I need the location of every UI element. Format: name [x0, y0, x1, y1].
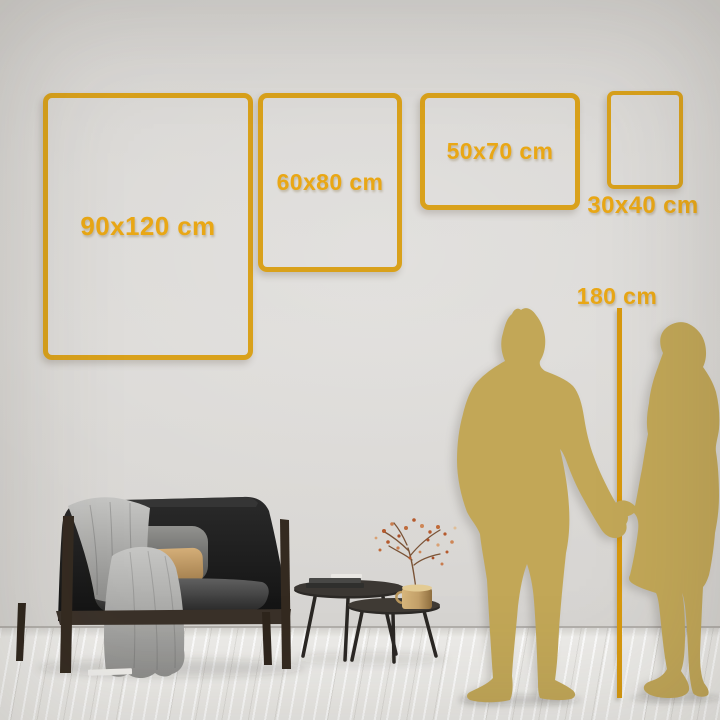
vase-rim [402, 585, 432, 592]
dried-flowers [375, 518, 457, 565]
size-frame-50x70: 50x70 cm [420, 93, 580, 210]
size-label-90x120: 90x120 cm [80, 211, 215, 242]
branch [383, 523, 440, 589]
sofa-icon [16, 497, 291, 678]
table-floor-shadow [292, 653, 448, 665]
size-frame-60x80: 60x80 cm [258, 93, 402, 272]
sofa-rail [56, 609, 291, 625]
size-comparison-infographic: 90x120 cm 60x80 cm 50x70 cm 30x40 cm 180… [0, 0, 720, 720]
man-silhouette [457, 308, 627, 702]
woman-silhouette [614, 322, 720, 698]
sofa-rear-left-leg [16, 603, 26, 661]
sofa-front-right-post [280, 519, 291, 669]
living-room-scene [0, 470, 470, 720]
size-frame-90x120: 90x120 cm [43, 93, 253, 360]
couple-silhouette-icon [440, 300, 720, 712]
size-label-30x40: 30x40 cm [586, 192, 700, 220]
size-label-60x80: 60x80 cm [277, 169, 384, 196]
size-label-50x70: 50x70 cm [447, 138, 554, 165]
coffee-tables-icon [294, 518, 457, 662]
size-frame-30x40 [607, 91, 683, 189]
books-icon [306, 574, 364, 588]
